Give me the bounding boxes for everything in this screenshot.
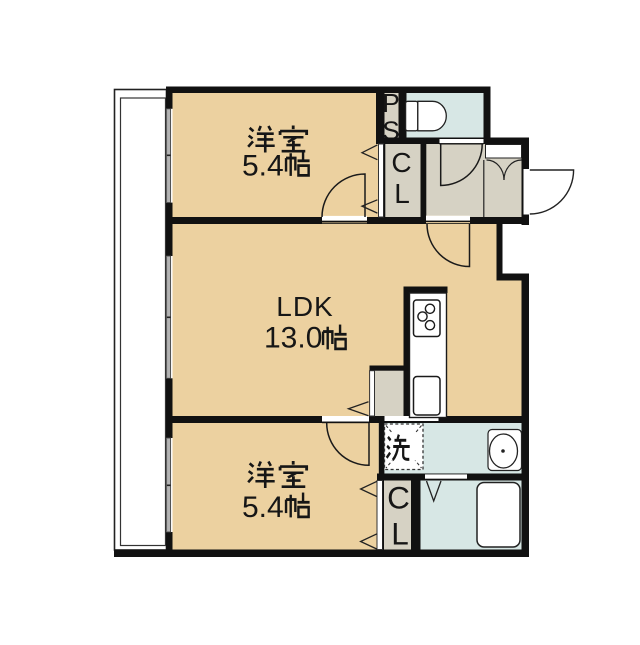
svg-text:C: C [391,147,411,178]
svg-text:L: L [394,178,410,209]
svg-text:L: L [391,516,409,552]
svg-text:5.4: 5.4 [242,150,284,183]
svg-text:5.4: 5.4 [242,491,284,524]
svg-text:C: C [387,480,410,516]
svg-text:LDK: LDK [276,291,333,322]
svg-text:13.0: 13.0 [264,322,322,355]
